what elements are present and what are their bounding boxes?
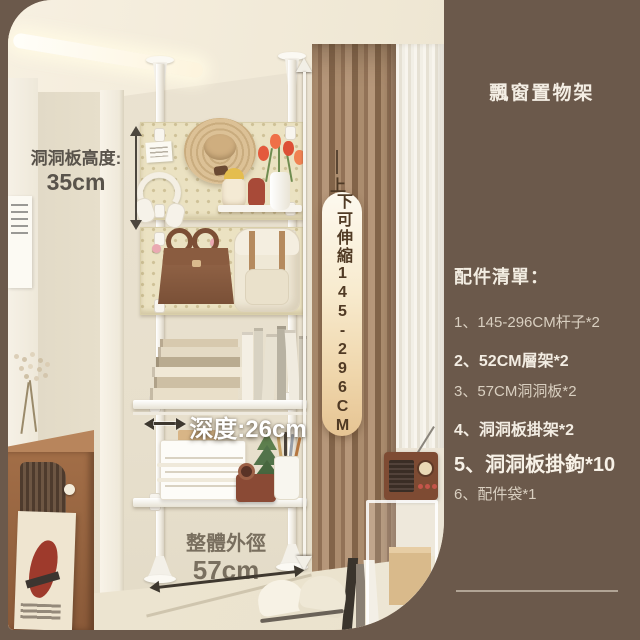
book	[154, 377, 240, 388]
depth-label: 深度:26cm	[168, 409, 328, 444]
extension-line	[303, 72, 306, 568]
pegboard-height-text: 洞洞板高度:	[18, 148, 134, 169]
organizer-slot	[165, 485, 243, 487]
dried-flowers	[10, 348, 56, 444]
handbag	[158, 248, 234, 304]
flower-stem	[29, 380, 37, 432]
pinned-note	[145, 141, 172, 163]
pegboard-hook	[152, 244, 161, 253]
accessories-header: 配件清單：	[454, 263, 549, 289]
wooden-box	[389, 547, 431, 605]
radio-knob	[418, 484, 423, 489]
overall-width-label: 整體外徑 57cm	[164, 533, 288, 584]
panel-divider	[456, 590, 618, 592]
book	[150, 388, 238, 400]
tulip	[283, 141, 294, 156]
desk-organizer	[160, 440, 246, 500]
pegboard-height-label: 洞洞板高度: 35cm	[18, 148, 134, 195]
tulip	[258, 146, 269, 161]
flower-cluster	[14, 354, 19, 359]
backpack-pocket	[245, 269, 289, 305]
extension-text: 下可伸縮145-296CM	[334, 193, 350, 436]
magazine-text	[20, 603, 61, 620]
hat-crown	[204, 134, 236, 160]
book	[152, 367, 242, 377]
overall-width-text: 整體外徑	[164, 533, 288, 556]
accessory-item-1: 1、145-296CM杆子*2	[454, 311, 600, 332]
magazine	[14, 511, 76, 630]
radio-grille	[389, 460, 414, 492]
tulip-vase	[270, 172, 290, 210]
cabinet-knob	[64, 484, 75, 495]
organizer-slot	[165, 471, 243, 473]
accessory-item-4: 4、洞洞板掛架*2	[454, 416, 574, 440]
note-lines	[150, 146, 169, 157]
page-title: 飄窗置物架	[450, 78, 634, 105]
pegboard-clamp	[154, 128, 165, 142]
flower-stem	[20, 382, 29, 434]
wall-poster	[8, 196, 32, 288]
vintage-speaker	[236, 474, 276, 502]
extension-arrow-up	[296, 58, 312, 72]
accessory-item-2: 2、52CM層架*2	[454, 347, 569, 371]
width-arrow-right	[294, 564, 305, 577]
paper	[157, 478, 243, 482]
height-arrow-up	[130, 126, 142, 136]
vintage-radio	[384, 452, 438, 500]
paper	[157, 463, 243, 467]
speaker-horn	[238, 463, 255, 480]
tulip	[270, 134, 281, 149]
accessory-item-5: 5、洞洞板掛鉤*10	[454, 448, 615, 477]
book	[242, 332, 253, 400]
book	[158, 347, 240, 357]
extension-banner: 下可伸縮145-296CM	[322, 192, 362, 436]
accessory-item-6: 6、配件袋*1	[454, 483, 537, 504]
pen-cup-body	[274, 456, 300, 500]
height-arrow-line	[135, 136, 137, 220]
book	[262, 334, 279, 400]
sheer-curtain	[396, 44, 444, 454]
pegboard-height-value: 35cm	[18, 169, 134, 195]
straw-hat	[184, 118, 256, 184]
product-card: 洞洞板高度: 35cm 上 下可伸縮145-296CM 深度:26cm 整體外徑…	[0, 0, 640, 640]
room-photo: 洞洞板高度: 35cm 上 下可伸縮145-296CM 深度:26cm 整體外徑…	[8, 0, 444, 630]
acrylic-side-table	[366, 500, 438, 628]
book	[160, 339, 238, 347]
shelf-board-1	[133, 400, 307, 409]
depth-arrow-left	[144, 418, 154, 430]
handbag-clasp	[192, 260, 201, 267]
width-arrow-left	[149, 581, 160, 594]
standing-books	[242, 325, 308, 400]
backpack-flap	[235, 229, 299, 255]
radio-knob	[432, 484, 437, 489]
height-arrow-down	[130, 220, 142, 230]
radio-knob	[425, 484, 430, 489]
radio-dial	[417, 460, 434, 477]
magazine-figure	[23, 537, 64, 600]
book	[156, 357, 240, 367]
poster-sketch	[11, 204, 28, 234]
banner-leader-line	[336, 150, 338, 174]
organizer-slot	[165, 457, 243, 459]
doll	[222, 178, 246, 208]
backpack	[234, 228, 300, 312]
accessory-item-3: 3、57CM洞洞板*2	[454, 380, 577, 401]
